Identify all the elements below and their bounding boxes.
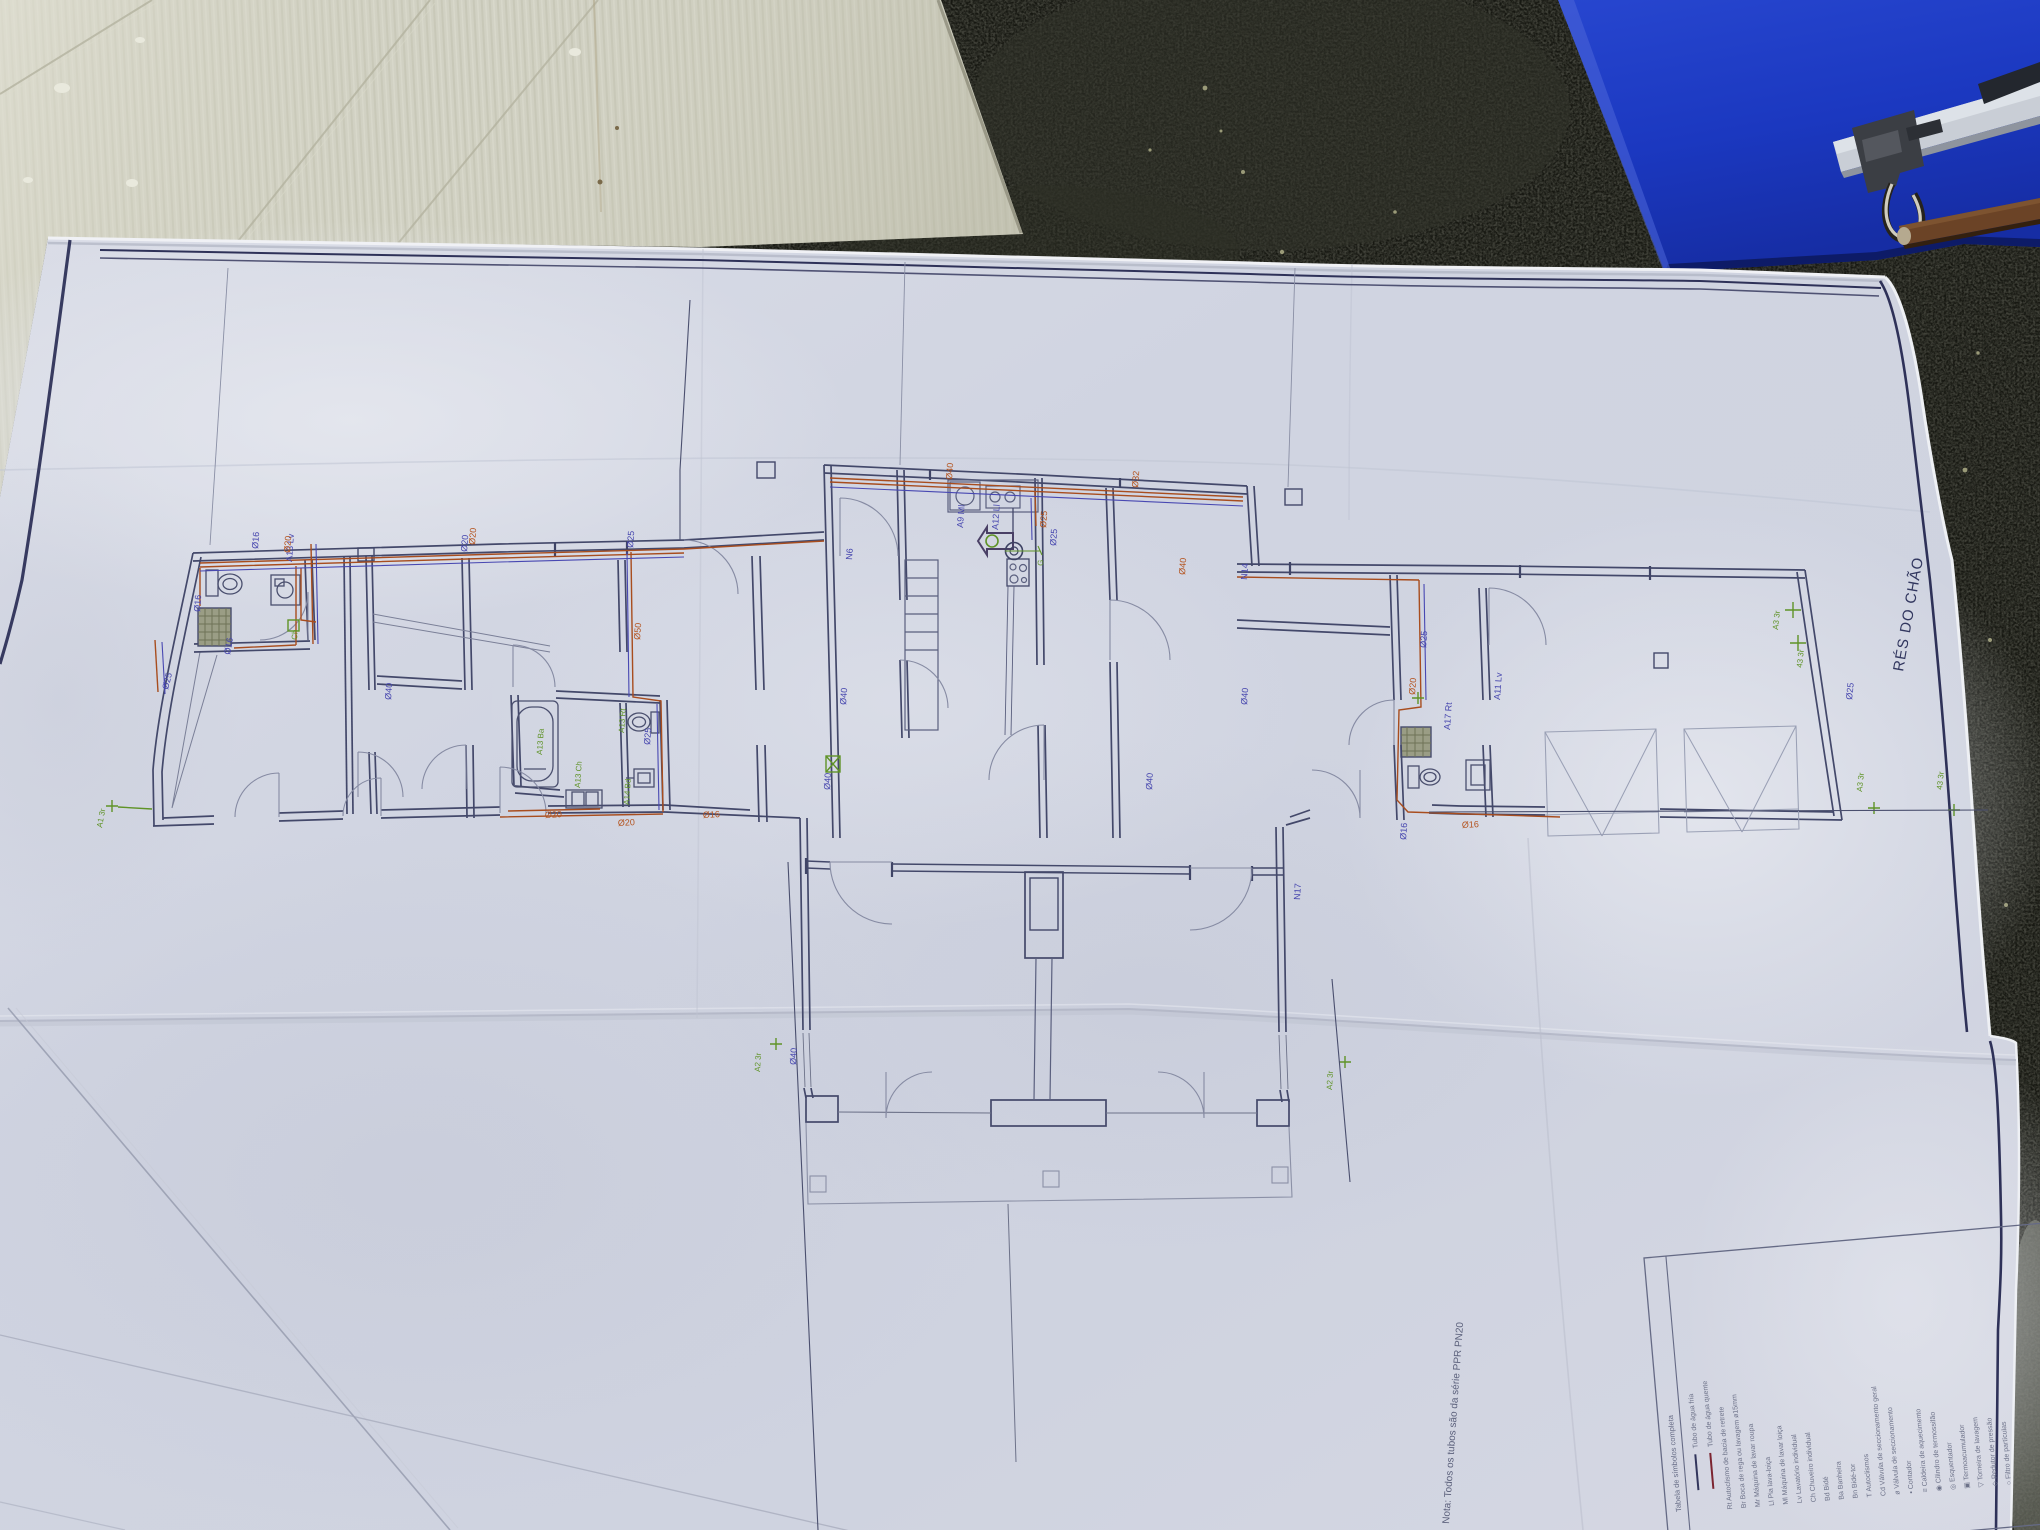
svg-text:Ø40: Ø40 [1239,687,1250,705]
svg-text:A13 Ch: A13 Ch [573,761,584,788]
svg-text:Ø16: Ø16 [1462,819,1480,830]
svg-text:Ø20: Ø20 [545,809,563,820]
svg-text:Ø25: Ø25 [1038,510,1049,528]
svg-text:A17 Rt: A17 Rt [1442,701,1454,730]
svg-text:Ø16: Ø16 [192,594,203,612]
svg-text:Ø50: Ø50 [632,622,643,640]
svg-text:N14: N14 [1239,563,1250,580]
svg-text:Ø40: Ø40 [944,462,955,480]
svg-text:Ø25: Ø25 [625,530,636,548]
svg-text:Ø16: Ø16 [1398,822,1409,840]
svg-text:Ø25: Ø25 [642,727,653,745]
svg-text:Ø25: Ø25 [1418,630,1429,648]
svg-text:A2 3r: A2 3r [753,1052,763,1072]
svg-text:Ø25: Ø25 [1844,682,1856,700]
svg-text:Ø20: Ø20 [467,527,478,545]
svg-text:Ø40: Ø40 [838,687,849,705]
svg-text:Ø20: Ø20 [282,535,293,553]
svg-text:Ø25: Ø25 [1048,528,1059,546]
svg-text:Ø16: Ø16 [250,531,261,549]
svg-text:A2 3r: A2 3r [1325,1070,1335,1090]
svg-text:A13 Rt: A13 Rt [617,707,628,733]
svg-text:A12 Ll: A12 Ll [990,504,1002,530]
svg-text:Ø20: Ø20 [618,817,636,828]
svg-text:A13 Ba: A13 Ba [535,728,546,755]
svg-text:Ø16: Ø16 [703,809,721,820]
svg-text:Ø40: Ø40 [1144,773,1155,791]
svg-text:Ø40: Ø40 [788,1048,799,1066]
svg-text:A9 Ml: A9 Ml [955,504,967,528]
svg-text:G: G [1036,559,1045,566]
svg-text:Ø20: Ø20 [1407,677,1418,695]
svg-text:A14 Bd: A14 Bd [622,778,633,805]
svg-text:N6: N6 [844,548,855,560]
svg-text:A11 Lv: A11 Lv [1492,672,1504,700]
svg-text:N17: N17 [1292,883,1303,900]
svg-text:Ø40: Ø40 [822,773,833,791]
svg-text:Ø40: Ø40 [383,682,394,700]
svg-text:Ø32: Ø32 [1130,470,1141,488]
svg-text:Ø40: Ø40 [1177,557,1188,575]
svg-text:Ch: Ch [290,629,300,640]
